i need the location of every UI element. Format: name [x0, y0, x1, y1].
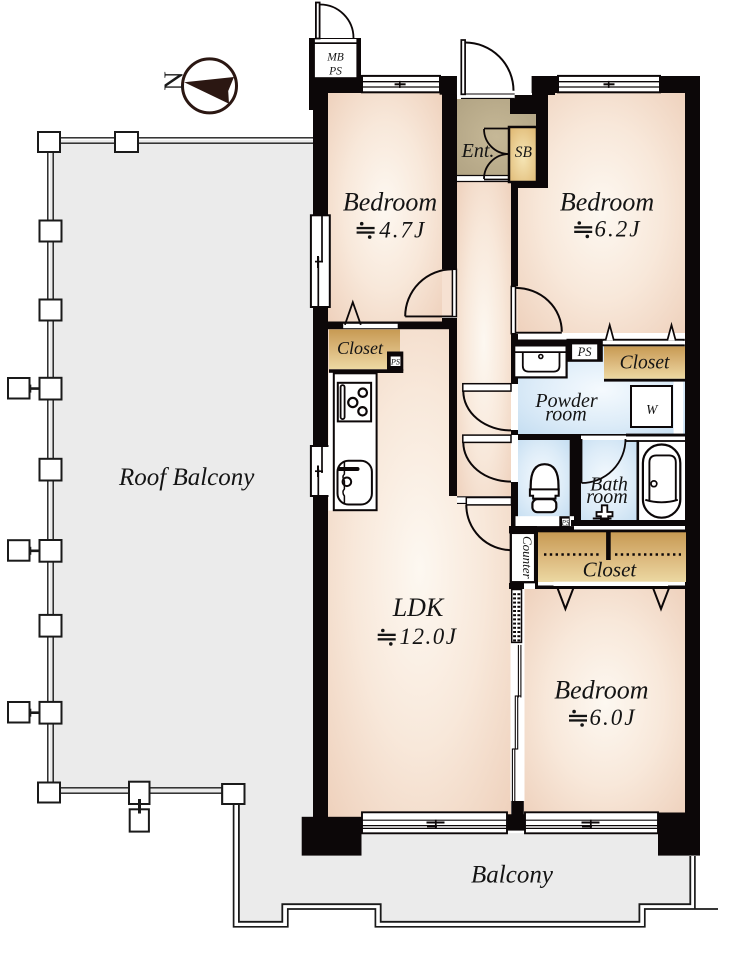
svg-text:W: W [646, 402, 659, 417]
svg-text:N: N [159, 71, 189, 91]
svg-text:Ent.: Ent. [461, 140, 495, 162]
svg-text:Roof Balcony: Roof Balcony [118, 464, 255, 491]
svg-text:PS: PS [577, 345, 593, 359]
svg-text:6.2J: 6.2J [595, 217, 642, 242]
svg-text:PS: PS [561, 519, 570, 527]
svg-text:SB: SB [515, 144, 533, 161]
svg-text:6.0J: 6.0J [590, 705, 637, 730]
svg-text:PS: PS [328, 66, 342, 78]
svg-text:PS: PS [390, 357, 400, 366]
svg-text:Closet: Closet [337, 338, 384, 358]
svg-text:LDK: LDK [392, 593, 445, 622]
svg-text:Balcony: Balcony [471, 862, 554, 889]
svg-text:Counter: Counter [520, 536, 535, 580]
svg-text:Bedroom: Bedroom [554, 676, 648, 705]
svg-text:4.7J: 4.7J [379, 217, 426, 242]
svg-text:MB: MB [326, 52, 344, 64]
svg-text:12.0J: 12.0J [400, 624, 458, 649]
svg-text:Closet: Closet [583, 558, 638, 582]
svg-text:room: room [545, 403, 586, 425]
svg-text:Bedroom: Bedroom [343, 188, 437, 217]
svg-text:Closet: Closet [620, 352, 670, 373]
svg-text:Bedroom: Bedroom [560, 187, 654, 216]
